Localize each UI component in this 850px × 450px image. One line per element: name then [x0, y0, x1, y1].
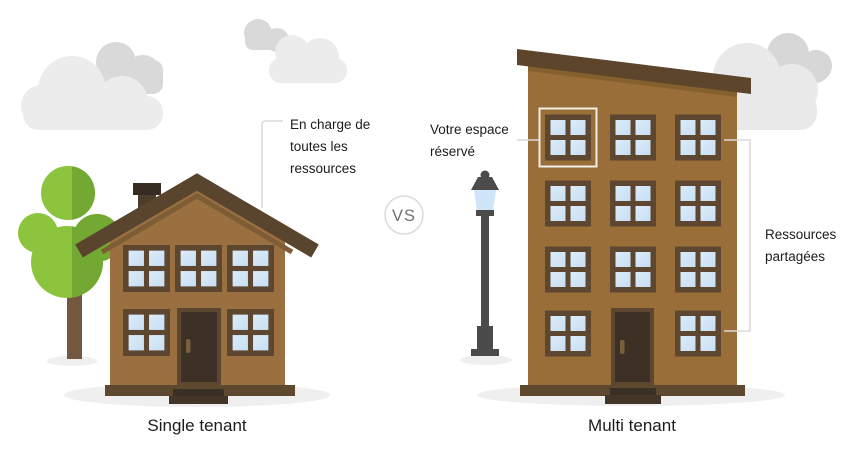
lamp-collar [476, 210, 494, 216]
cloud-left [21, 42, 163, 130]
vs-badge: VS [385, 196, 423, 234]
building-door-steps [605, 388, 661, 404]
window [675, 181, 721, 227]
annotation-line-1: En charge de [290, 117, 370, 132]
door-steps [169, 389, 228, 404]
single-tenant-label: Single tenant [147, 416, 247, 435]
lamp-foot [471, 349, 499, 356]
window [545, 247, 591, 293]
window [545, 181, 591, 227]
annotation-line-2: partagées [765, 249, 825, 264]
single-tenant-house [79, 182, 315, 404]
annotation-shared-resources: Ressources partagées [724, 140, 837, 331]
tree [18, 166, 121, 359]
building-door [611, 308, 654, 386]
vs-label: VS [392, 207, 416, 225]
multi-tenant-building [517, 49, 751, 404]
tree-trunk [67, 293, 82, 359]
cloud-middle [244, 19, 347, 83]
window [675, 247, 721, 293]
window [123, 309, 170, 356]
lamp-cap [471, 177, 499, 190]
window [675, 115, 721, 161]
window [675, 311, 721, 357]
window [123, 245, 170, 292]
lamp-base [477, 326, 493, 350]
cloud-light-lobe [269, 35, 347, 83]
annotation-line-3: ressources [290, 161, 356, 176]
annotation-line-1: Ressources [765, 227, 837, 242]
lamp-glass [474, 190, 496, 211]
annotation-line-1: Votre espace [430, 122, 509, 137]
annotation-line-2: réservé [430, 144, 475, 159]
window [227, 309, 274, 356]
window [227, 245, 274, 292]
annotation-full-resources: En charge de toutes les ressources [262, 117, 370, 208]
window [610, 181, 656, 227]
illustration-canvas: En charge de toutes les ressources Singl… [0, 0, 850, 450]
lamp-shadow [460, 355, 512, 365]
window [175, 245, 222, 292]
window [545, 311, 591, 357]
annotation-line-2: toutes les [290, 139, 348, 154]
window [610, 115, 656, 161]
front-door [177, 308, 221, 386]
window [545, 115, 591, 161]
lamp-pole [481, 216, 489, 328]
annotation-connector-line [262, 121, 283, 208]
street-lamp [471, 171, 499, 357]
annotation-reserved-space: Votre espace réservé [430, 122, 539, 159]
window [610, 247, 656, 293]
multi-tenant-label: Multi tenant [588, 416, 676, 435]
